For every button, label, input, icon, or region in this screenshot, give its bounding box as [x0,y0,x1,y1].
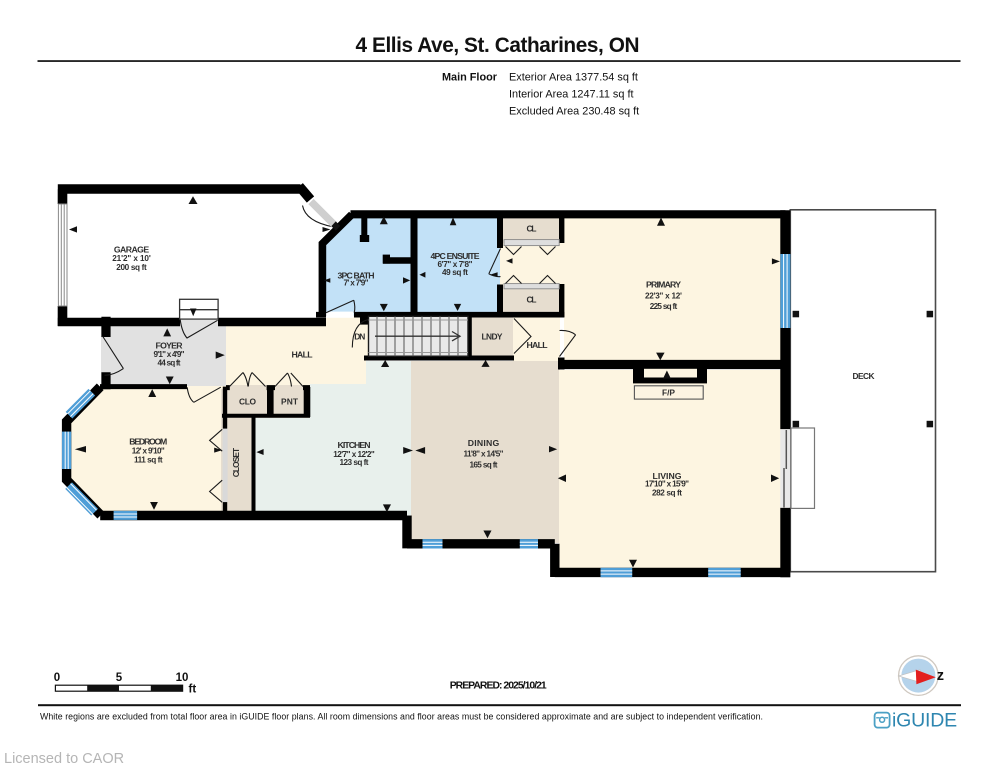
svg-text:21'2" x 10': 21'2" x 10' [112,254,151,263]
svg-text:HALL: HALL [292,350,314,360]
svg-text:225 sq ft: 225 sq ft [650,302,678,311]
svg-text:282 sq ft: 282 sq ft [652,488,682,497]
svg-text:12' x 9'10": 12' x 9'10" [132,447,165,456]
svg-text:DINING: DINING [468,438,500,448]
svg-text:FOYER: FOYER [156,340,184,350]
svg-text:165 sq ft: 165 sq ft [470,460,498,469]
svg-text:44 sq ft: 44 sq ft [158,358,181,367]
svg-text:0: 0 [54,672,60,684]
svg-text:BEDROOM: BEDROOM [129,437,167,447]
svg-text:5: 5 [116,672,123,684]
svg-text:22'3" x 12': 22'3" x 12' [645,291,682,300]
svg-text:LNDY: LNDY [482,331,503,341]
svg-text:10: 10 [176,672,189,684]
svg-text:Licensed to CAOR: Licensed to CAOR [4,751,124,767]
svg-text:HALL: HALL [527,340,549,350]
svg-text:Excluded Area 230.48 sq ft: Excluded Area 230.48 sq ft [509,105,639,117]
svg-text:PNT: PNT [281,397,299,407]
svg-text:CL: CL [527,295,537,305]
svg-text:DECK: DECK [853,371,875,381]
svg-text:200 sq ft: 200 sq ft [116,263,147,272]
svg-text:111 sq ft: 111 sq ft [134,455,163,464]
svg-text:Exterior Area 1377.54 sq ft: Exterior Area 1377.54 sq ft [509,71,638,83]
svg-text:Interior Area 1247.11 sq ft: Interior Area 1247.11 sq ft [509,88,634,100]
svg-text:CL: CL [527,224,537,234]
svg-text:4 Ellis Ave, St. Catharines, O: 4 Ellis Ave, St. Catharines, ON [356,34,640,57]
svg-text:F/P: F/P [662,387,675,397]
svg-text:17'10" x 15'9": 17'10" x 15'9" [645,480,689,489]
svg-text:DN: DN [354,331,365,341]
svg-text:iGUIDE: iGUIDE [892,710,957,732]
svg-text:KITCHEN: KITCHEN [338,440,371,450]
svg-text:GARAGE: GARAGE [114,244,150,254]
svg-text:ft: ft [189,684,197,696]
svg-text:PRIMARY: PRIMARY [646,280,681,290]
svg-text:11'8" x 14'5": 11'8" x 14'5" [464,449,504,458]
svg-text:PREPARED: 2025/10/21: PREPARED: 2025/10/21 [450,681,547,692]
svg-text:CLO: CLO [239,397,256,407]
svg-text:7' x 7'9": 7' x 7'9" [344,279,369,288]
svg-text:49 sq ft: 49 sq ft [442,268,468,277]
svg-text:Main Floor: Main Floor [442,71,498,83]
svg-text:White regions are excluded fro: White regions are excluded from total fl… [40,712,763,722]
svg-text:z: z [937,668,944,684]
svg-text:CLOSET: CLOSET [231,447,241,477]
svg-text:123 sq ft: 123 sq ft [340,458,369,467]
